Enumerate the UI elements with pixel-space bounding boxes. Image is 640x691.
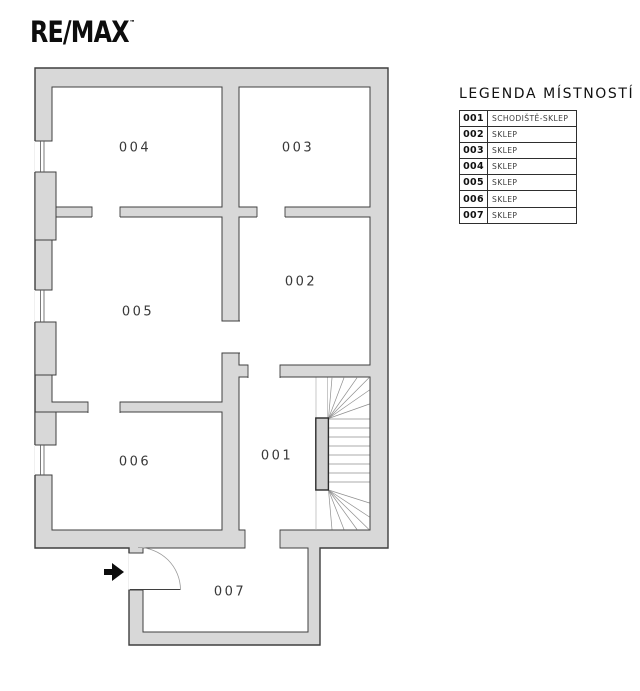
legend-room-name: SKLEP [488,130,517,139]
legend-room-name: SCHODIŠTĚ-SKLEP [488,114,568,123]
legend-room-number: 007 [460,208,488,223]
legend-room-name: SKLEP [488,178,517,187]
legend-title: LEGENDA MÍSTNOSTÍ [459,86,629,102]
legend-room-number: 001 [460,111,488,126]
room-label-004: 004 [119,141,151,156]
room-label-005: 005 [122,305,154,320]
legend-room-name: SKLEP [488,211,517,220]
legend-room-name: SKLEP [488,195,517,204]
room-001-area [239,377,370,530]
legend-row: 004 SKLEP [460,159,576,175]
legend-room-name: SKLEP [488,162,517,171]
room-002-area [239,217,370,365]
legend-room-number: 003 [460,143,488,158]
legend-room-number: 004 [460,159,488,174]
window-room-004 [34,141,52,172]
legend-row: 006 SKLEP [460,191,576,207]
room-006-area [52,412,222,530]
entrance-arrow-icon [104,563,124,581]
legend-row: 001 SCHODIŠTĚ-SKLEP [460,111,576,127]
window-room-005 [34,290,52,322]
legend-room-number: 002 [460,127,488,142]
room-interiors [52,87,370,632]
legend-room-number: 006 [460,191,488,206]
legend-room-name: SKLEP [488,146,517,155]
legend-table: 001 SCHODIŠTĚ-SKLEP 002 SKLEP 003 SKLEP … [459,110,577,224]
room-label-002: 002 [285,275,317,290]
legend-row: 007 SKLEP [460,208,576,223]
room-label-003: 003 [282,141,314,156]
legend-row: 002 SKLEP [460,127,576,143]
legend-room-number: 005 [460,175,488,190]
room-label-001: 001 [261,449,293,464]
room-label-006b: 006 [119,455,151,470]
stair-newel-wall [316,418,329,490]
legend: LEGENDA MÍSTNOSTÍ 001 SCHODIŠTĚ-SKLEP 00… [459,86,629,224]
legend-row: 003 SKLEP [460,143,576,159]
room-label-007: 007 [214,585,246,600]
window-room-006 [34,445,52,475]
legend-row: 005 SKLEP [460,175,576,191]
